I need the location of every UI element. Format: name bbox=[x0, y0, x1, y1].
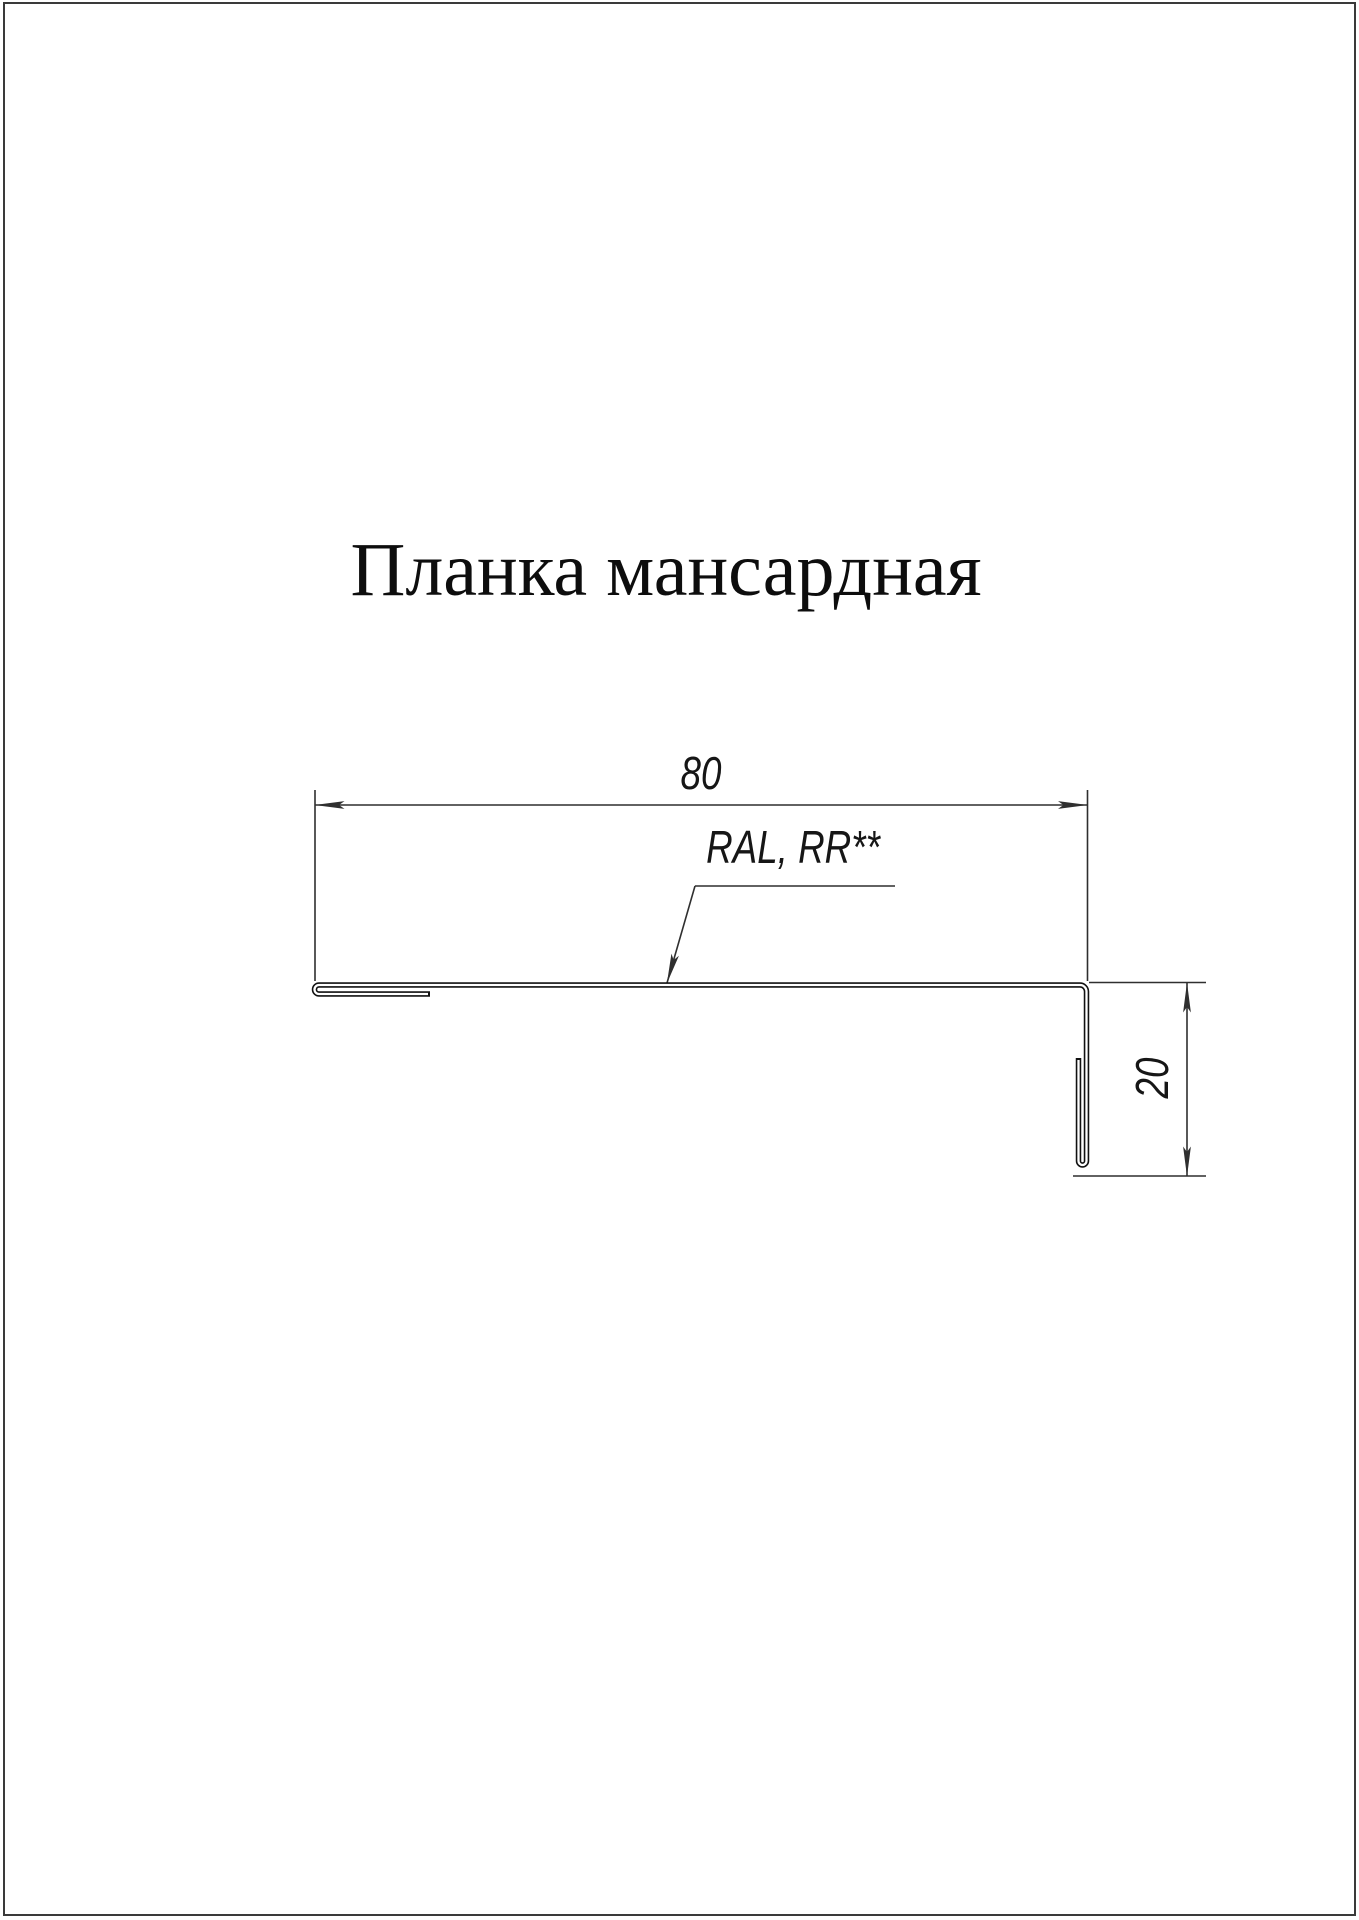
profile-metal-outline bbox=[315, 985, 1087, 1165]
profile-drawing-canvas bbox=[0, 0, 1359, 1920]
leader-line-arrow bbox=[667, 886, 695, 983]
coating-label: RAL, RR** bbox=[673, 824, 913, 870]
dimension-width-label: 80 bbox=[621, 750, 781, 796]
profile-metal-core bbox=[315, 985, 1087, 1165]
dimension-height-label: 20 bbox=[1129, 998, 1175, 1158]
drawing-page: Планка мансардная 80 RAL, RR** 20 bbox=[0, 0, 1359, 1920]
